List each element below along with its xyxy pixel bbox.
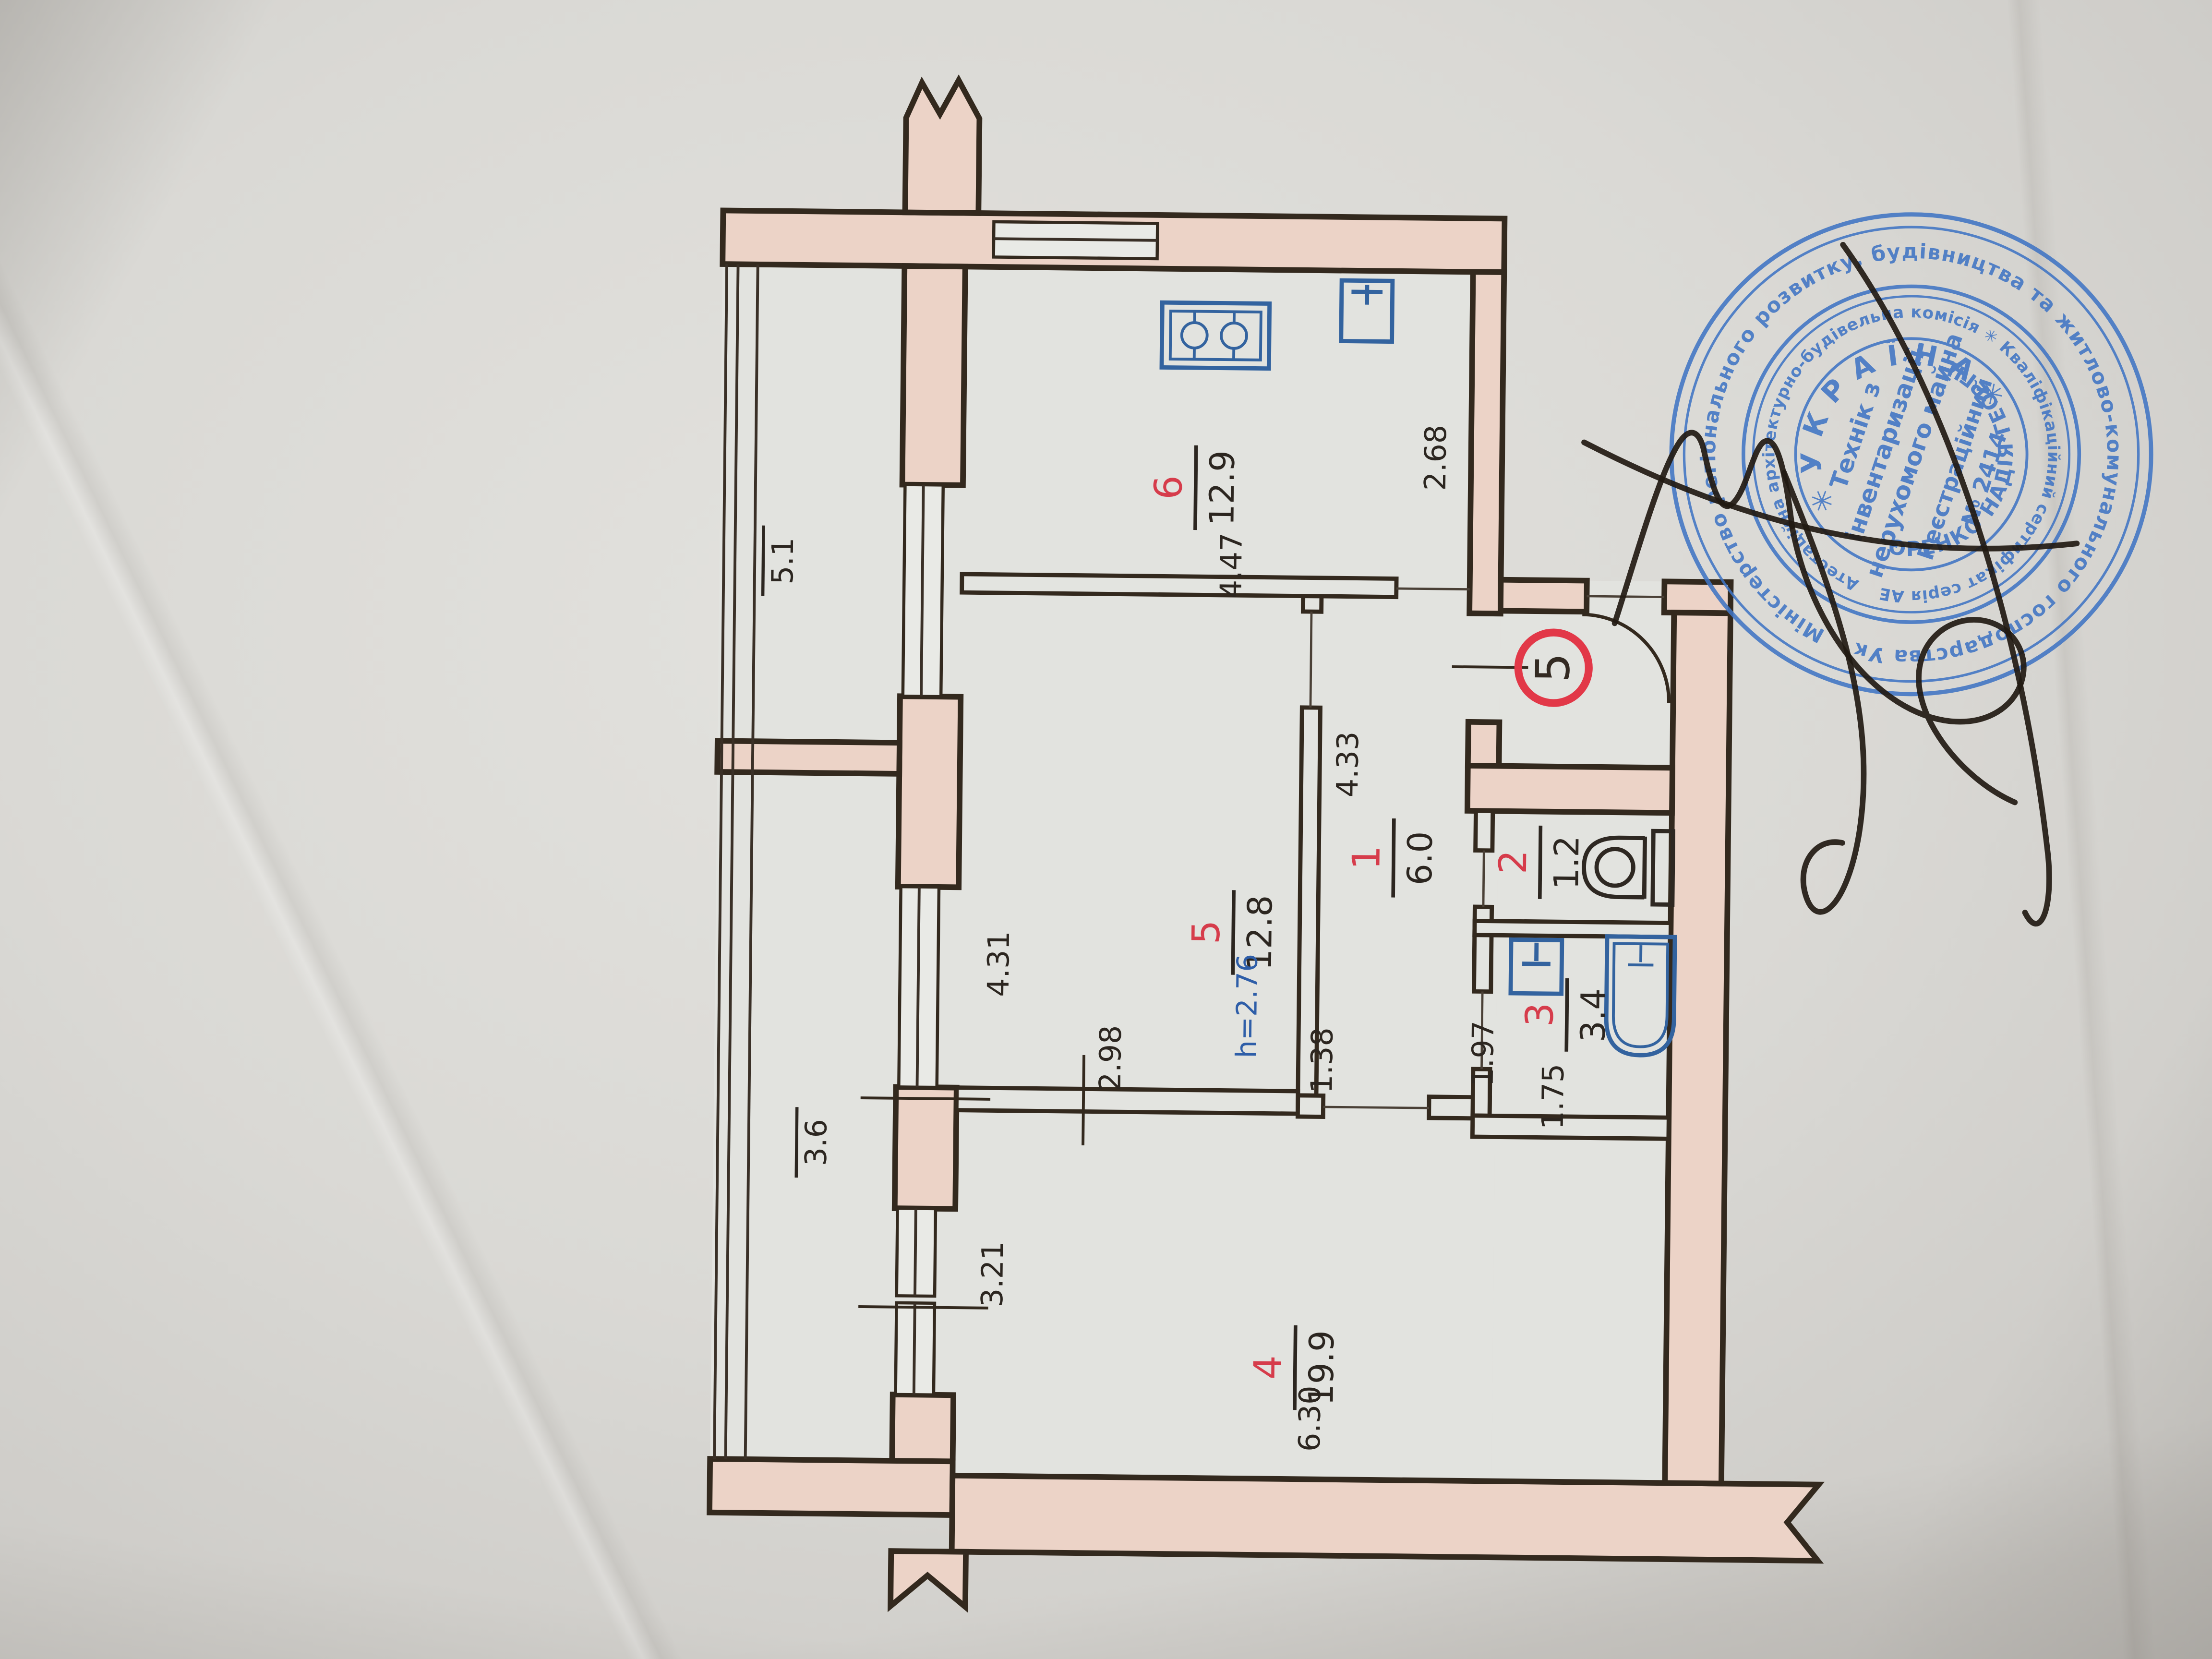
svg-text:3: 3 (1517, 1002, 1562, 1027)
svg-text:5.1: 5.1 (765, 537, 800, 585)
kitchen-window-icon (903, 485, 943, 697)
svg-text:2.98: 2.98 (1093, 1025, 1128, 1091)
svg-text:3.21: 3.21 (975, 1241, 1010, 1307)
wall-break-right (952, 1476, 1819, 1561)
svg-text:2: 2 (1491, 850, 1536, 874)
svg-text:4.47: 4.47 (1214, 532, 1249, 599)
svg-text:12.9: 12.9 (1202, 450, 1242, 526)
dim-hall-width: 1.38 (1304, 1027, 1339, 1094)
dim-room5-width: 2.98 (1093, 1025, 1128, 1091)
dim-room4-left: 3.21 (975, 1241, 1010, 1307)
dim-bath-depth: 1.97 (1466, 1021, 1501, 1087)
room5-ceiling-height: h=2.76 (1229, 954, 1263, 1058)
svg-text:1.97: 1.97 (1466, 1021, 1501, 1087)
svg-text:6.30: 6.30 (1292, 1385, 1327, 1452)
svg-text:5: 5 (1184, 920, 1229, 944)
svg-text:3.4: 3.4 (1574, 988, 1613, 1042)
kitchen-top-window-icon (994, 222, 1158, 259)
dim-kitchen-width: 4.47 (1214, 532, 1249, 599)
svg-text:h=2.76: h=2.76 (1229, 954, 1263, 1058)
room5-balcony-window-icon (899, 887, 939, 1087)
dim-kitchen-depth: 2.68 (1418, 424, 1453, 491)
svg-text:6: 6 (1146, 475, 1191, 500)
svg-text:1.2: 1.2 (1547, 835, 1587, 890)
svg-text:4.33: 4.33 (1330, 731, 1365, 797)
floor-plan-drawing: 6 12.9 5 12.8 1 6.0 2 1.2 3 3.4 4 19.9 (0, 0, 2212, 1659)
svg-text:4: 4 (1245, 1355, 1290, 1380)
svg-text:1.75: 1.75 (1536, 1063, 1571, 1130)
photographed-floor-plan-document: 6 12.9 5 12.8 1 6.0 2 1.2 3 3.4 4 19.9 (0, 0, 2212, 1659)
svg-text:6.0: 6.0 (1400, 831, 1440, 885)
svg-text:1.38: 1.38 (1304, 1027, 1339, 1094)
dim-bath-width: 1.75 (1536, 1063, 1571, 1130)
balcony-divider-wall (717, 741, 900, 774)
svg-text:1: 1 (1344, 845, 1389, 870)
wall-break-bottom (890, 1551, 966, 1607)
dim-room4-bottom: 6.30 (1292, 1385, 1327, 1452)
dim-hall-depth: 4.33 (1330, 731, 1365, 797)
wall-break-top (905, 80, 980, 213)
svg-text:5: 5 (1526, 653, 1580, 683)
svg-text:4.31: 4.31 (981, 931, 1016, 997)
dim-room5-depth: 4.31 (981, 931, 1016, 997)
svg-text:2.68: 2.68 (1418, 424, 1453, 491)
svg-text:3.6: 3.6 (799, 1119, 834, 1166)
